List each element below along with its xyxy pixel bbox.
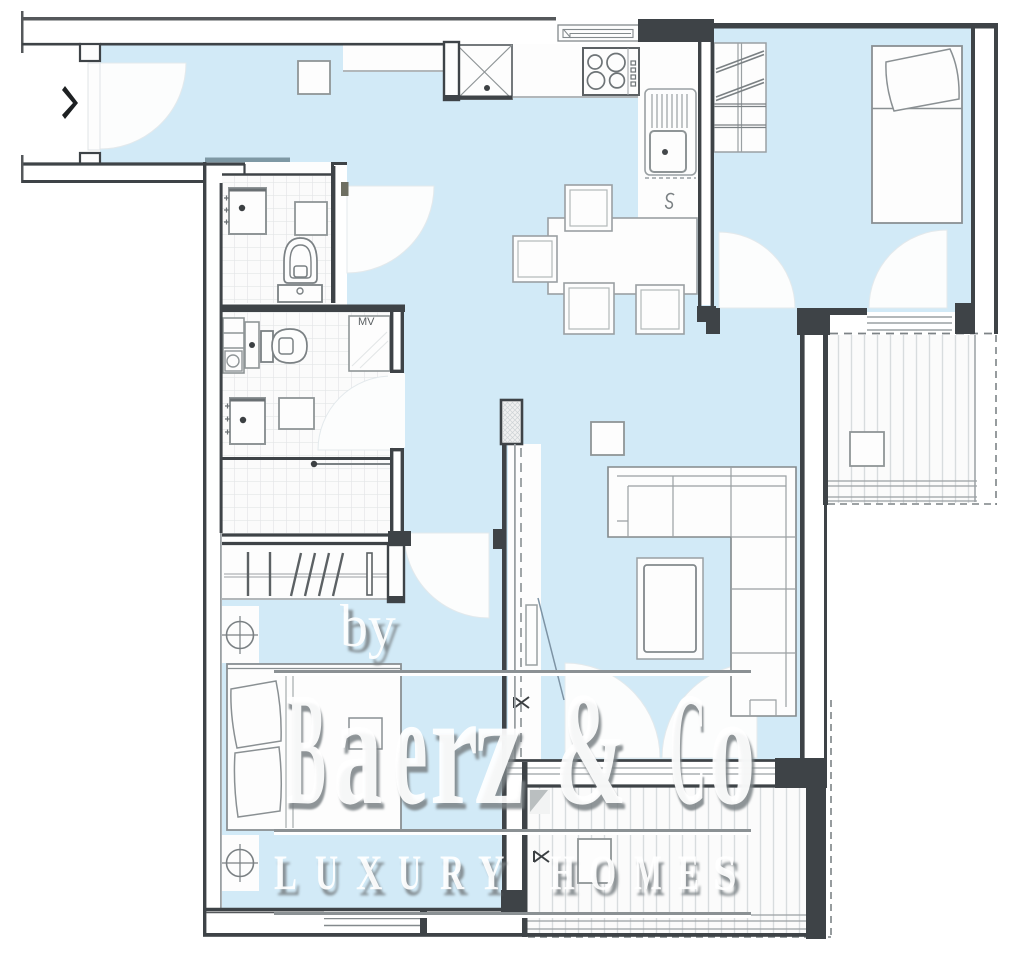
svg-text:MV: MV [358, 316, 375, 328]
